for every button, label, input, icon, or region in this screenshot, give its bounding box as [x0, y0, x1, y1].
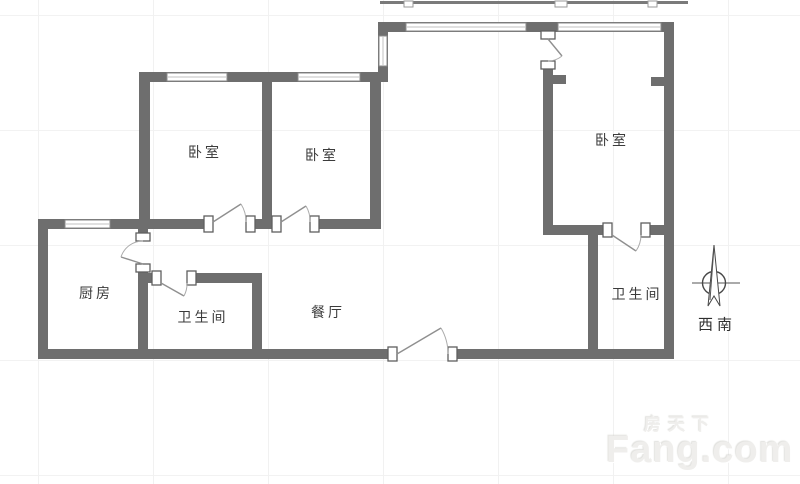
- window: [379, 36, 387, 66]
- bay-outline: [380, 1, 688, 7]
- window: [65, 220, 110, 228]
- room-label-bathroom-2: 卫生间: [612, 284, 663, 304]
- window: [167, 73, 227, 81]
- window: [558, 23, 661, 31]
- room-label-kitchen: 厨房: [79, 283, 113, 303]
- fang-watermark-logo: 房天下 Fang.com: [606, 416, 800, 469]
- room-label-bedroom-1: 卧室: [188, 142, 222, 162]
- door-bathroom-1: [161, 283, 187, 296]
- north-arrow-icon: [692, 245, 740, 306]
- door-kitchen: [121, 241, 143, 264]
- room-label-bedroom-3: 卧室: [595, 130, 629, 150]
- watermark-english-text: Fang.com: [606, 431, 800, 469]
- door-bedroom-1: [213, 204, 246, 222]
- room-label-dining: 餐厅: [311, 302, 345, 322]
- door-bathroom-2: [612, 235, 641, 251]
- compass-direction-label: 西南: [698, 314, 736, 335]
- door-bedroom-3: [548, 39, 562, 61]
- floorplan-image: 卧室 卧室 卧室 厨房 卫生间 餐厅 卫生间 西南 房天下 Fang.com: [0, 0, 800, 484]
- door-dining: [397, 328, 448, 354]
- floorplan-drawing: [0, 0, 800, 484]
- room-label-bedroom-2: 卧室: [305, 145, 339, 165]
- windows-layer: [65, 23, 661, 228]
- door-bedroom-2: [281, 206, 310, 222]
- room-label-bathroom-1: 卫生间: [178, 307, 229, 327]
- window: [298, 73, 360, 81]
- window: [406, 23, 526, 31]
